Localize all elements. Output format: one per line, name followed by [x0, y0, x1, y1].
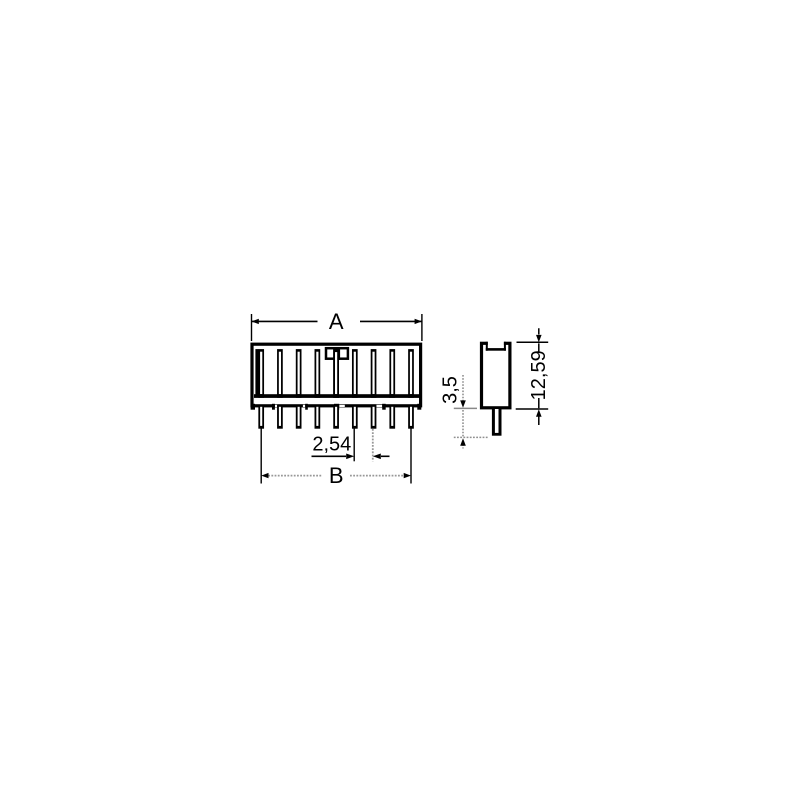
svg-text:A: A — [329, 309, 344, 334]
svg-text:3,5: 3,5 — [439, 376, 461, 404]
svg-text:2,54: 2,54 — [312, 433, 351, 455]
svg-text:B: B — [329, 463, 344, 488]
svg-text:12,59: 12,59 — [528, 350, 550, 400]
